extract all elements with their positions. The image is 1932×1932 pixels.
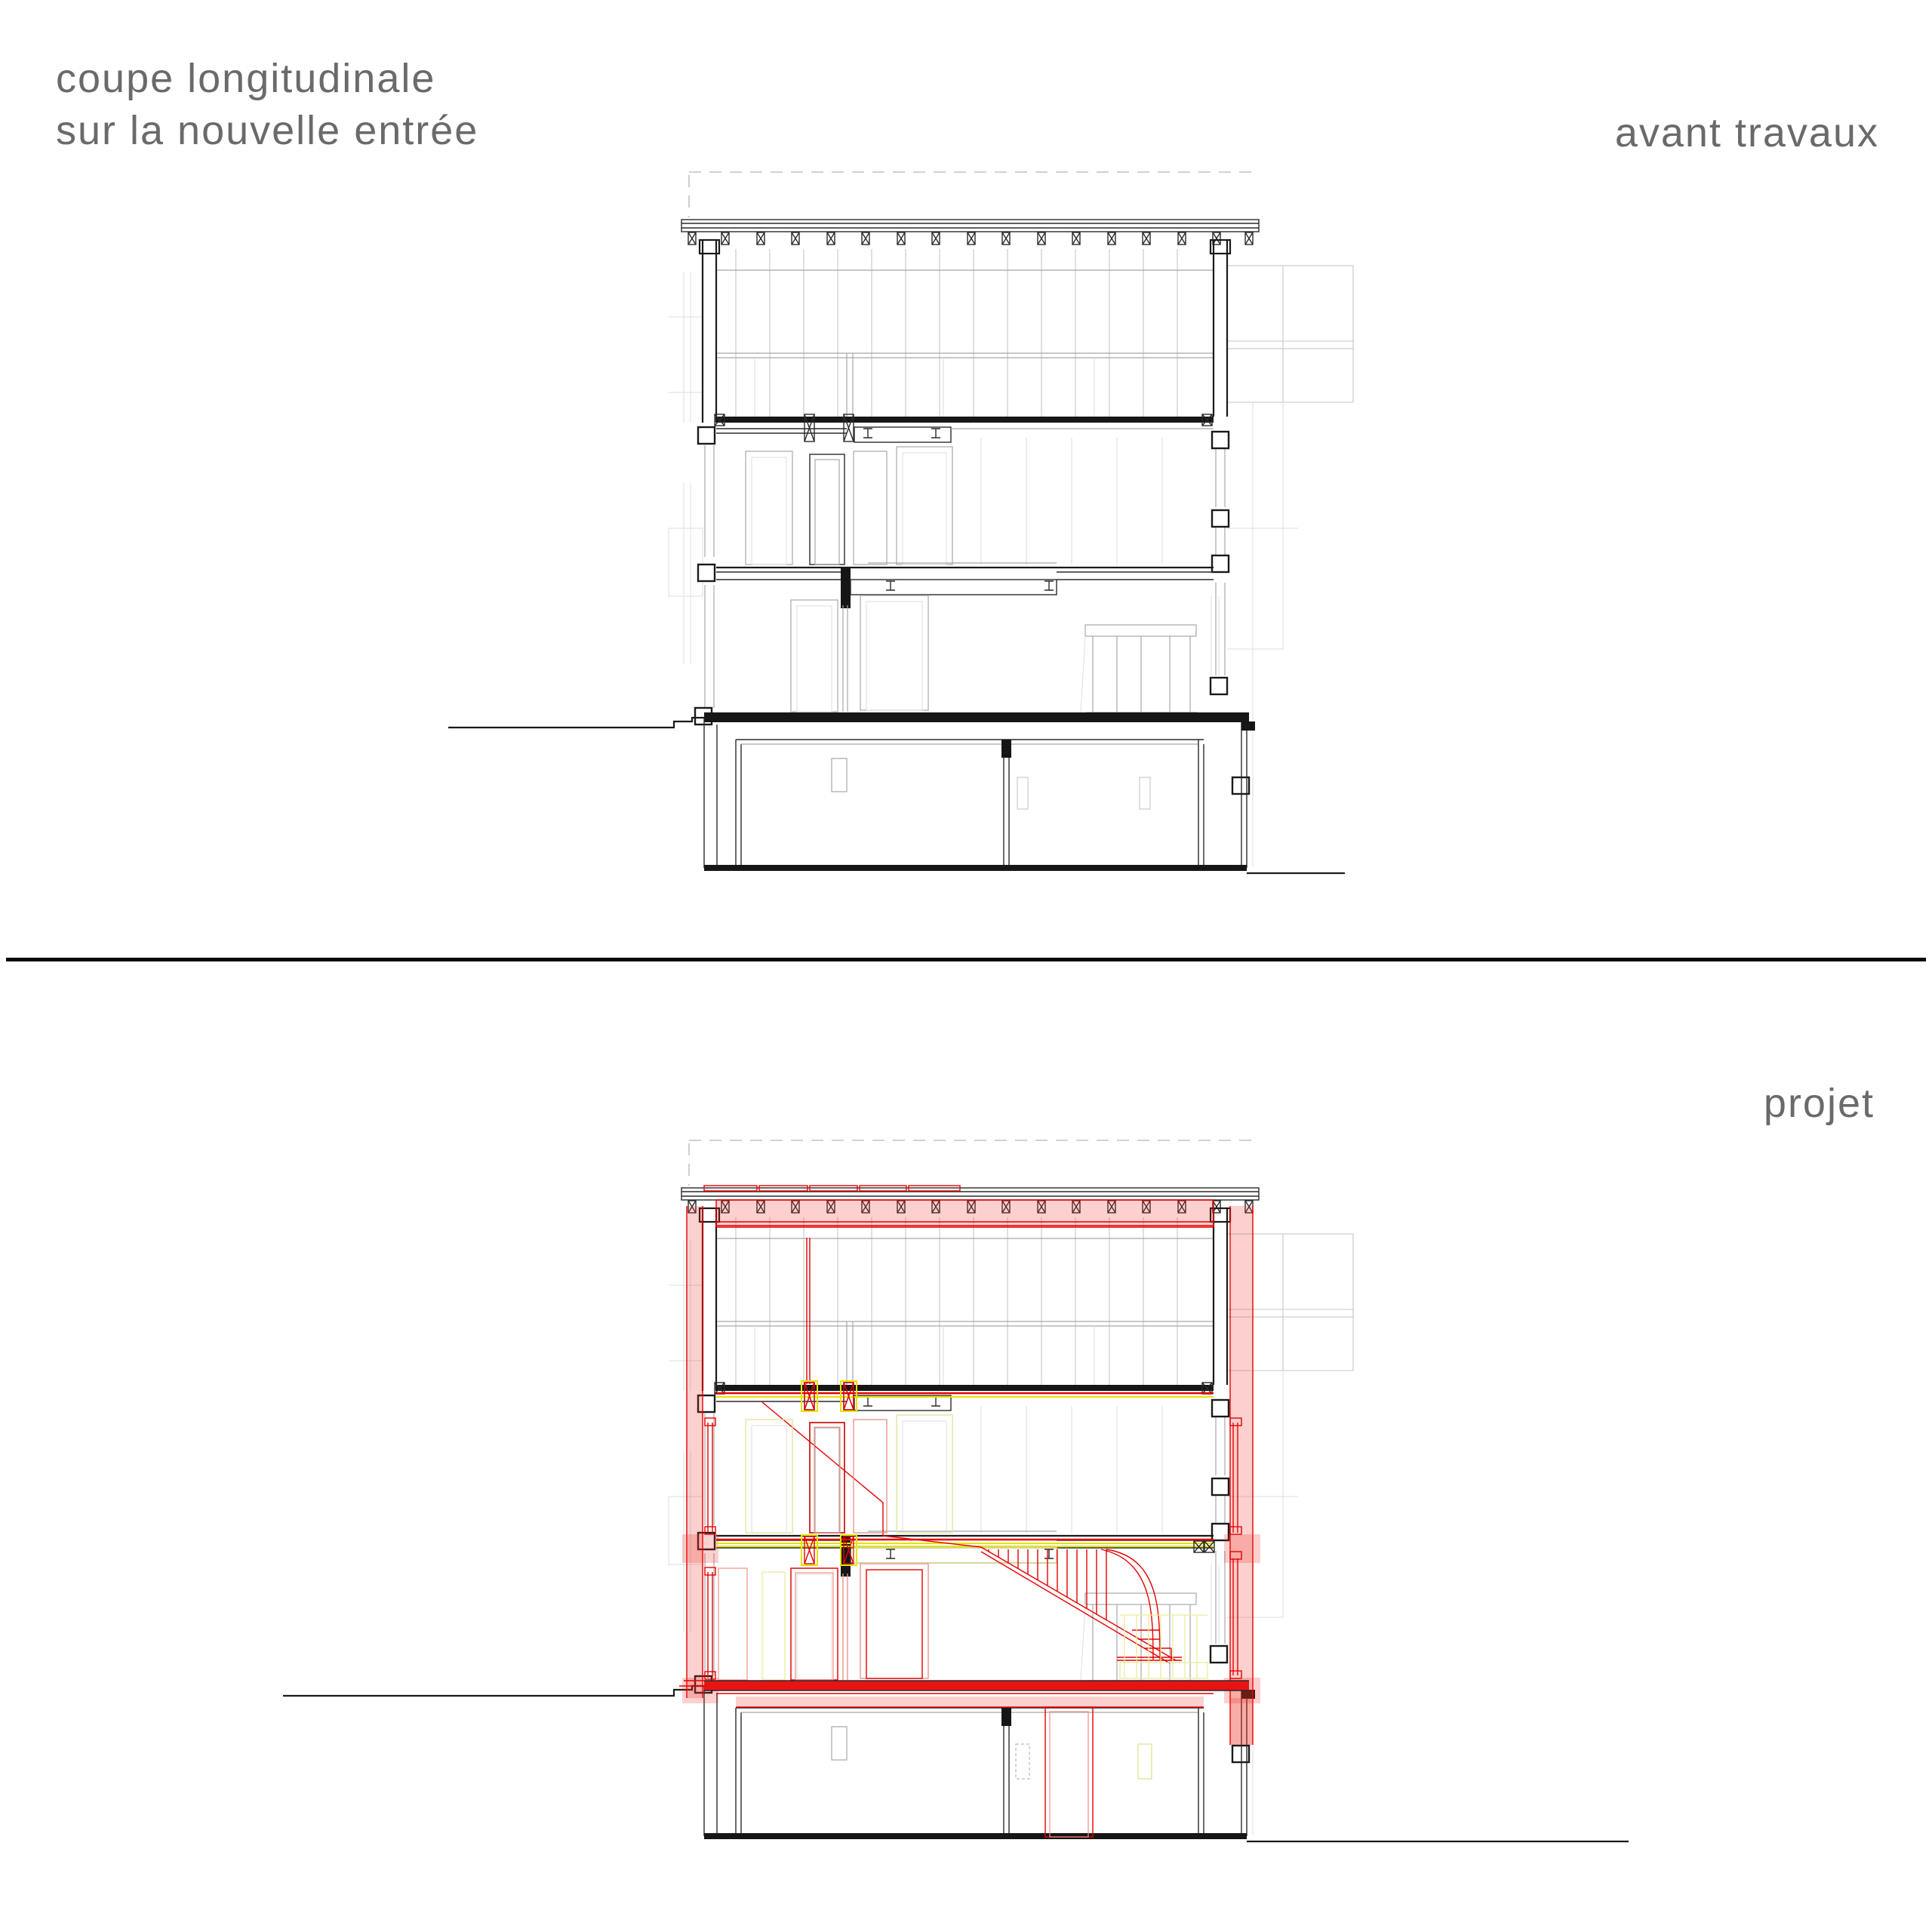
new-flue <box>807 1238 810 1384</box>
projet-overlay <box>283 1186 1629 1841</box>
label-projet: projet <box>1764 1078 1875 1130</box>
sheet-divider-line <box>6 958 1926 961</box>
new-staircase <box>883 1536 1207 1678</box>
sheet-title-line1: coupe longitudinale <box>56 56 435 101</box>
demolished-balustrade <box>1120 1615 1207 1678</box>
sheet-title-line2: sur la nouvelle entrée <box>56 108 478 153</box>
new-ground-slab <box>679 1681 1249 1707</box>
section-avant-travaux <box>448 172 1353 873</box>
label-avant-travaux: avant travaux <box>1615 107 1879 159</box>
basement-ceiling-insulation <box>736 1697 1204 1707</box>
sheet-title: coupe longitudinalesur la nouvelle entré… <box>56 53 478 157</box>
roof-insulation-band <box>716 1200 1214 1227</box>
basement-new-works <box>1016 1698 1253 1837</box>
new-insulated-walls <box>682 1206 1260 1745</box>
roof-new-works <box>704 1186 1214 1384</box>
mid-floor-new-works <box>716 1535 1214 1565</box>
drawing-sheet <box>0 0 1932 1932</box>
first-floor-new-works <box>705 1402 1241 1536</box>
section-projet <box>283 1140 1629 1841</box>
